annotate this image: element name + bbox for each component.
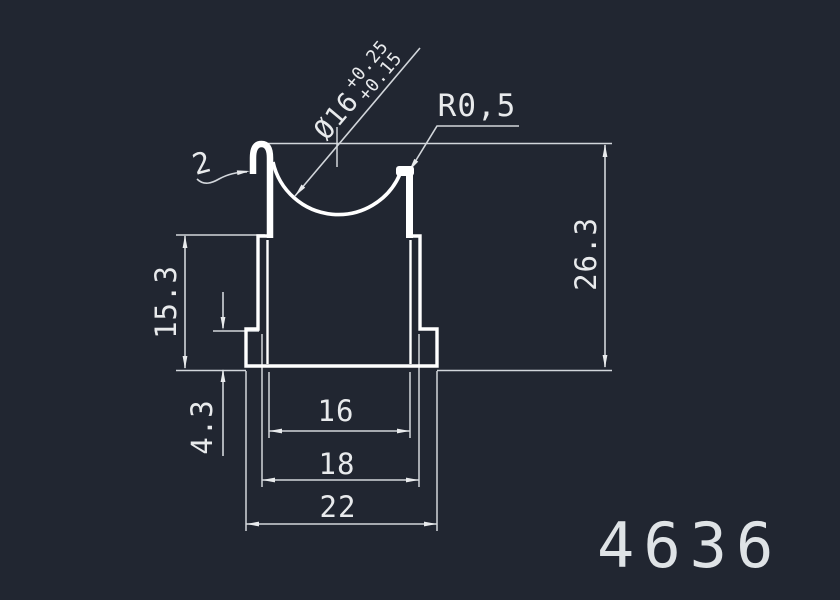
dim-text-body-width: 18 [319,447,356,481]
dim-text-base-width: 22 [320,490,357,524]
part-number: 4636 [597,509,782,582]
profile-left-finger [253,144,270,238]
dim-text-body-height: 15.3 [149,265,183,339]
profile-body-base [246,236,437,366]
leader-r05 [410,126,519,170]
dim-text-base-height: 4.3 [185,399,219,454]
profile-right-finger-cap [396,166,414,176]
dim-text-tip-radius: R0,5 [438,88,517,124]
dim-text-overall-height: 26.3 [569,217,603,291]
dimension-lines [185,48,605,524]
profile-bore-arc [273,162,400,215]
dim-text-slot-width: 16 [318,394,355,428]
profile-outline [246,144,437,366]
cad-drawing-canvas: 16 18 22 26.3 15.3 4.3 R0,5 2 Ø16 +0.25 … [0,0,840,600]
